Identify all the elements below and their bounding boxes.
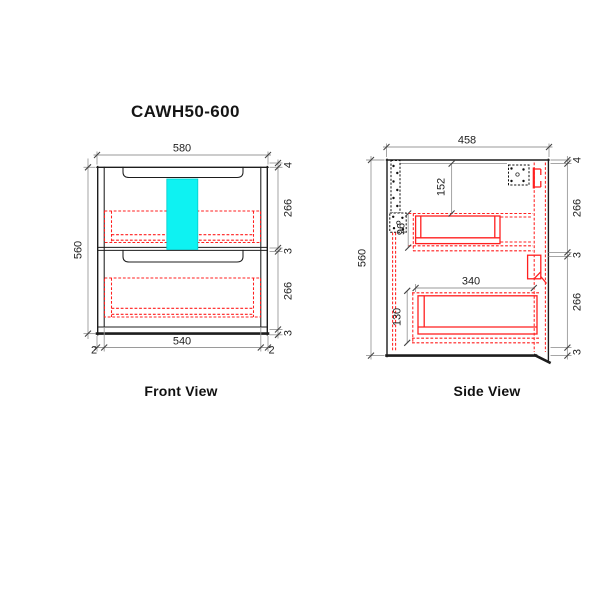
front-dim-bottom-gap-left: 2 bbox=[91, 345, 97, 356]
side-drawer-gap-handle bbox=[528, 255, 547, 283]
front-drawer2-hidden-box bbox=[105, 278, 261, 317]
front-view-caption: Front View bbox=[144, 383, 217, 399]
front-dim-right-drawer1: 266 bbox=[283, 198, 294, 216]
back-rail-bracket bbox=[391, 161, 400, 214]
side-dim-drawer1-height: 96 bbox=[396, 222, 407, 234]
side-dim-runner-length: 340 bbox=[462, 276, 480, 287]
side-dim-drawer2-height: 130 bbox=[393, 307, 404, 325]
front-dim-left-height: 560 bbox=[74, 241, 85, 259]
side-cabinet-outline bbox=[387, 159, 550, 362]
wall-mount-brackets bbox=[390, 161, 529, 233]
side-view-caption: Side View bbox=[454, 383, 521, 399]
front-dim-bottom-gap-right: 2 bbox=[268, 345, 274, 356]
front-dim-right-top-gap: 4 bbox=[283, 161, 294, 167]
side-front-panel-clip bbox=[533, 168, 541, 189]
side-view-drawing bbox=[366, 144, 572, 363]
side-dim-right-drawer1: 266 bbox=[572, 198, 583, 216]
side-dim-left-height: 560 bbox=[357, 248, 368, 266]
front-view-drawing bbox=[84, 152, 283, 352]
side-dim-drawer1-offset: 152 bbox=[437, 177, 448, 195]
side-dim-right-bottom-gap: 3 bbox=[572, 348, 583, 354]
drawing-canvas bbox=[0, 0, 600, 600]
drawer1-handle-recess bbox=[123, 167, 243, 177]
front-dim-bottom-inner-width: 540 bbox=[173, 336, 191, 347]
side-drawer2-profile bbox=[412, 293, 541, 343]
side-dim-right-drawer2: 266 bbox=[572, 293, 583, 311]
side-dim-right-top-gap: 4 bbox=[572, 156, 583, 162]
side-dim-right-gap: 3 bbox=[572, 251, 583, 257]
front-dim-right-gap: 3 bbox=[283, 248, 294, 254]
side-dim-top-depth: 458 bbox=[458, 135, 476, 146]
highlight-overlay bbox=[167, 179, 198, 250]
front-dim-right-drawer2: 266 bbox=[283, 282, 294, 300]
front-dim-right-bottom-gap: 3 bbox=[283, 329, 294, 335]
product-code-title: CAWH50-600 bbox=[131, 102, 240, 122]
drawer2-handle-recess bbox=[123, 250, 243, 262]
drawing-sheet: CAWH50-600 580 560 4 266 3 266 3 540 2 2… bbox=[0, 0, 600, 600]
side-hidden-panels bbox=[393, 163, 546, 353]
front-dim-top-width: 580 bbox=[173, 144, 191, 155]
side-drawer1-profile bbox=[409, 214, 534, 251]
